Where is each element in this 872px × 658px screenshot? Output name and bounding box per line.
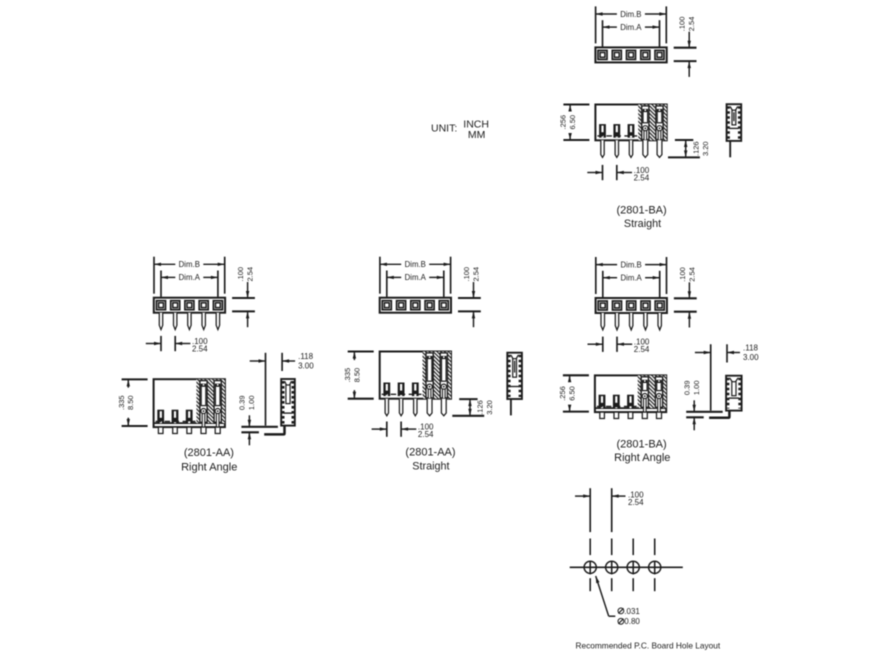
svg-text:.256: .256 <box>558 386 567 401</box>
svg-text:.335: .335 <box>343 368 352 383</box>
svg-text:2.54: 2.54 <box>687 17 696 32</box>
svg-text:.100: .100 <box>678 17 687 32</box>
svg-text:.100: .100 <box>678 267 687 282</box>
svg-text:Dim.B: Dim.B <box>179 260 200 269</box>
svg-text:3.00: 3.00 <box>743 353 759 362</box>
svg-text:0.80: 0.80 <box>624 617 640 626</box>
svg-text:Dim.A: Dim.A <box>179 273 201 282</box>
svg-text:Recommended P.C. Board Hole La: Recommended P.C. Board Hole Layout <box>576 640 721 650</box>
svg-text:Dim.A: Dim.A <box>620 23 642 32</box>
svg-text:Dim.B: Dim.B <box>620 260 641 269</box>
svg-text:(2801-BA): (2801-BA) <box>617 439 667 451</box>
svg-text:.256: .256 <box>559 115 568 130</box>
svg-text:2.54: 2.54 <box>634 173 650 182</box>
svg-text:UNIT:: UNIT: <box>431 123 457 135</box>
svg-text:3.00: 3.00 <box>298 362 314 371</box>
svg-text:0.39: 0.39 <box>238 395 247 410</box>
svg-text:.031: .031 <box>624 607 640 616</box>
svg-text:(2801-AA): (2801-AA) <box>184 447 234 459</box>
svg-text:2.54: 2.54 <box>418 430 434 439</box>
svg-text:.126: .126 <box>691 141 700 156</box>
svg-text:Straight: Straight <box>624 218 661 230</box>
svg-text:(2801-BA): (2801-BA) <box>617 205 667 217</box>
svg-text:.100: .100 <box>236 267 245 282</box>
svg-text:Dim.A: Dim.A <box>405 273 427 282</box>
svg-text:(2801-AA): (2801-AA) <box>405 447 455 459</box>
svg-text:.118: .118 <box>743 344 759 353</box>
svg-text:Right Angle: Right Angle <box>181 461 237 473</box>
svg-text:2.54: 2.54 <box>687 267 696 282</box>
svg-text:3.20: 3.20 <box>701 141 710 156</box>
svg-text:Dim.B: Dim.B <box>405 260 426 269</box>
svg-text:0.39: 0.39 <box>683 380 692 395</box>
svg-text:Straight: Straight <box>412 460 449 472</box>
svg-text:2.54: 2.54 <box>628 498 644 507</box>
svg-text:3.20: 3.20 <box>485 400 494 415</box>
svg-text:.335: .335 <box>117 395 126 410</box>
svg-text:Dim.B: Dim.B <box>620 10 641 19</box>
svg-text:1.00: 1.00 <box>692 380 701 395</box>
svg-text:.118: .118 <box>298 352 314 361</box>
svg-text:8.50: 8.50 <box>352 368 361 383</box>
svg-text:2.54: 2.54 <box>634 345 650 354</box>
svg-text:MM: MM <box>468 129 486 141</box>
svg-text:.126: .126 <box>476 400 485 415</box>
svg-text:2.54: 2.54 <box>192 344 208 353</box>
svg-text:2.54: 2.54 <box>471 267 480 282</box>
svg-text:.100: .100 <box>462 267 471 282</box>
svg-text:8.50: 8.50 <box>126 395 135 410</box>
svg-text:1.00: 1.00 <box>247 395 256 410</box>
svg-text:Dim.A: Dim.A <box>620 274 642 283</box>
svg-text:6.50: 6.50 <box>568 115 577 130</box>
svg-text:Right Angle: Right Angle <box>614 452 670 464</box>
svg-text:2.54: 2.54 <box>246 267 255 282</box>
svg-text:6.50: 6.50 <box>568 386 577 401</box>
